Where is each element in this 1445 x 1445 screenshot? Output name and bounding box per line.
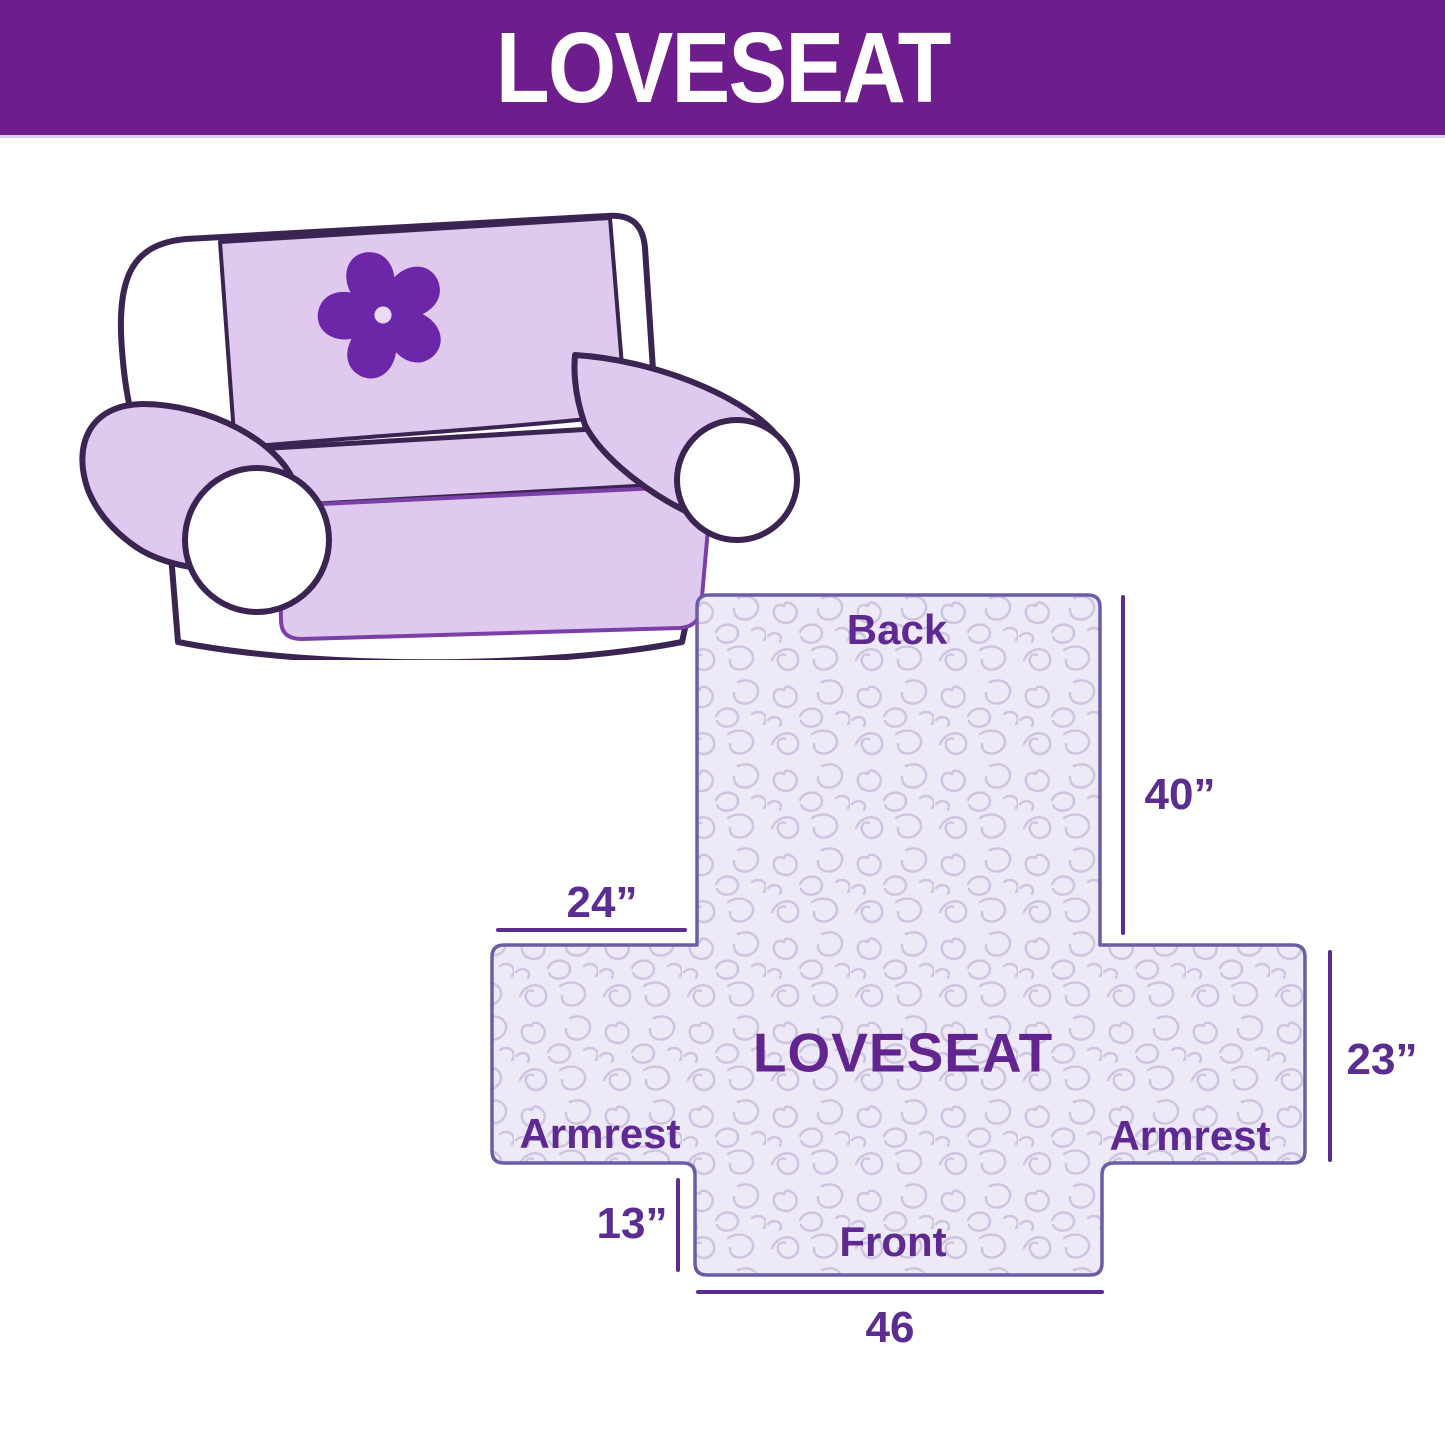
right-arm-roll bbox=[677, 420, 797, 540]
back-height-dimension: 40” bbox=[1145, 773, 1216, 817]
back-top-width-dimension: 24” bbox=[567, 881, 638, 925]
cover-outline-shape bbox=[492, 595, 1305, 1275]
page: LOVESEAT bbox=[0, 0, 1445, 1445]
back-section-label: Back bbox=[847, 609, 947, 651]
armrest-left-label: Armrest bbox=[519, 1113, 680, 1155]
armrest-height-dimension: 23” bbox=[1347, 1038, 1418, 1082]
page-title: LOVESEAT bbox=[496, 18, 950, 118]
product-label: LOVESEAT bbox=[753, 1026, 1053, 1081]
front-height-dimension: 13” bbox=[597, 1202, 668, 1246]
left-arm-roll bbox=[185, 468, 329, 612]
front-width-dimension: 46 bbox=[866, 1306, 915, 1350]
header-banner: LOVESEAT bbox=[0, 0, 1445, 138]
front-section-label: Front bbox=[839, 1221, 946, 1263]
armrest-right-label: Armrest bbox=[1109, 1115, 1270, 1157]
